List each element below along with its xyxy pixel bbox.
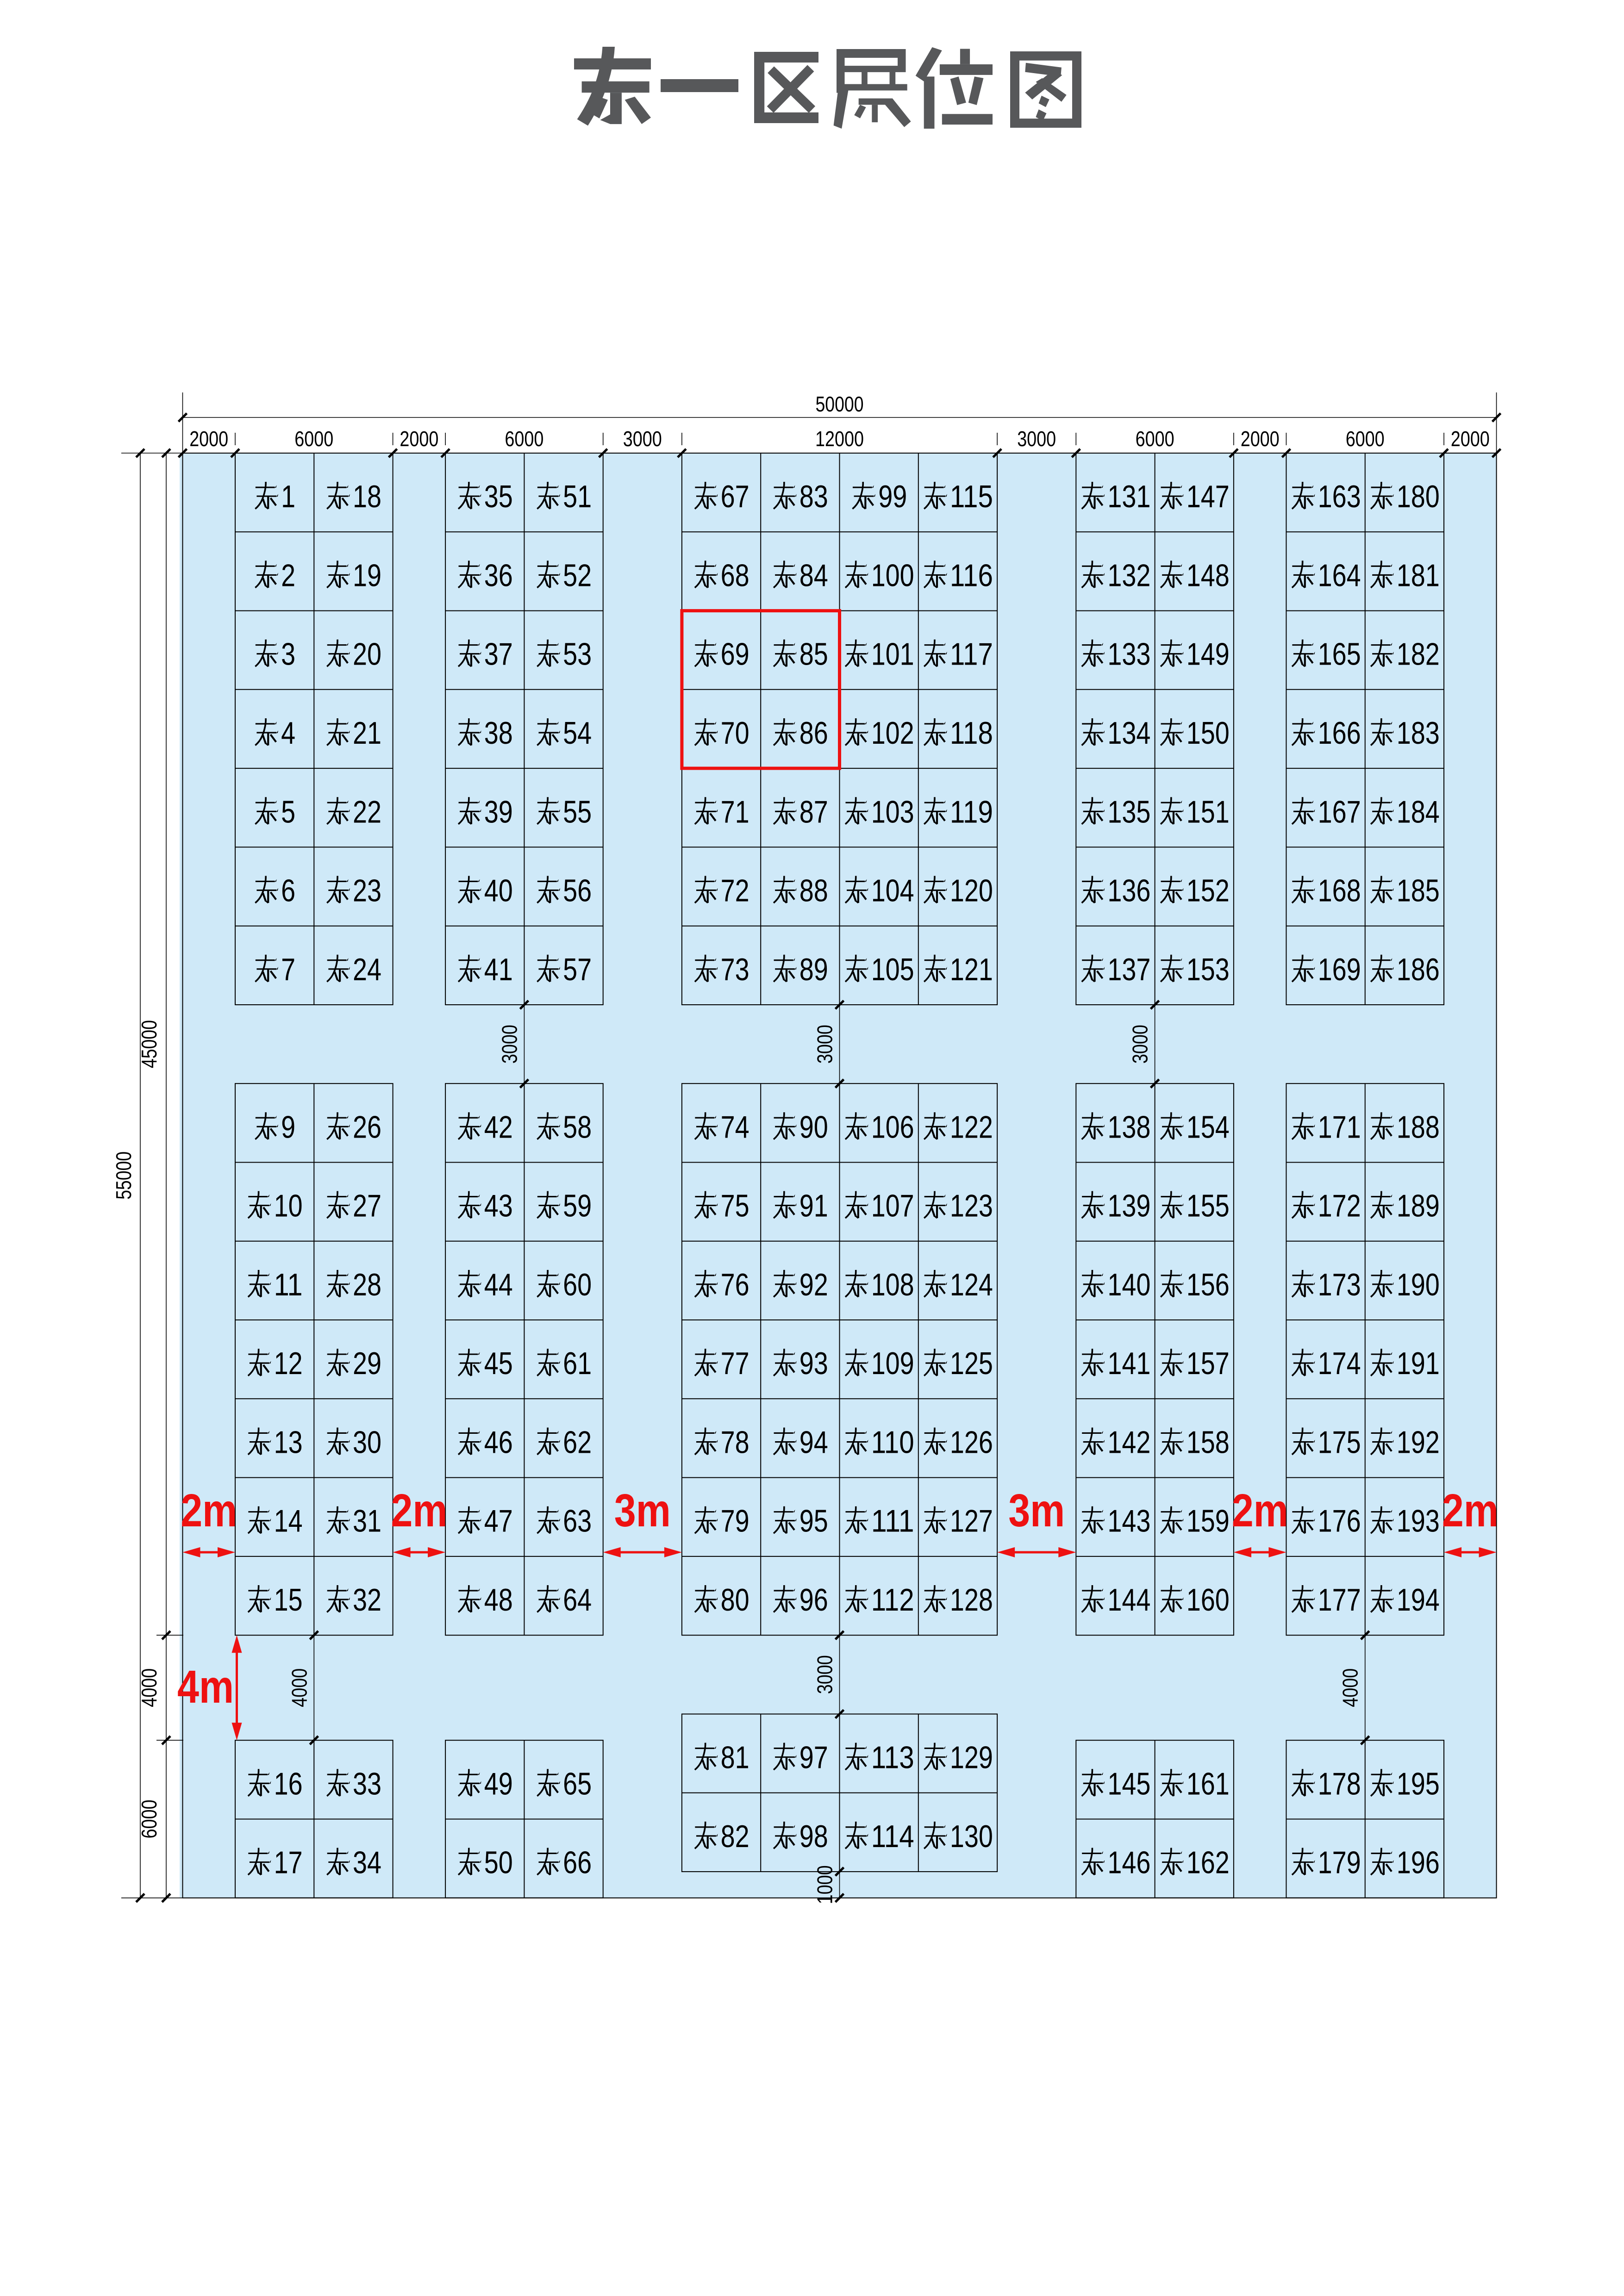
svg-text:94: 94 xyxy=(800,1425,828,1460)
svg-text:60: 60 xyxy=(563,1267,592,1302)
svg-text:65: 65 xyxy=(563,1766,592,1801)
svg-text:38: 38 xyxy=(484,716,513,751)
svg-text:57: 57 xyxy=(563,952,592,987)
svg-text:87: 87 xyxy=(800,794,828,829)
svg-text:79: 79 xyxy=(721,1504,750,1539)
svg-text:159: 159 xyxy=(1187,1504,1230,1539)
svg-text:3000: 3000 xyxy=(813,1025,837,1064)
svg-text:178: 178 xyxy=(1318,1766,1361,1801)
svg-text:180: 180 xyxy=(1397,479,1440,514)
svg-text:2: 2 xyxy=(281,558,295,593)
svg-text:107: 107 xyxy=(871,1188,914,1224)
svg-text:111: 111 xyxy=(871,1504,914,1539)
svg-text:56: 56 xyxy=(563,873,592,908)
svg-text:194: 194 xyxy=(1397,1582,1440,1618)
svg-text:92: 92 xyxy=(800,1267,828,1302)
svg-text:3m: 3m xyxy=(1008,1485,1065,1537)
svg-text:20: 20 xyxy=(353,637,381,672)
svg-text:148: 148 xyxy=(1187,558,1230,593)
svg-text:193: 193 xyxy=(1397,1504,1440,1539)
svg-text:154: 154 xyxy=(1187,1109,1230,1145)
svg-text:4: 4 xyxy=(281,716,295,751)
svg-text:151: 151 xyxy=(1187,794,1230,829)
svg-text:4000: 4000 xyxy=(1338,1668,1362,1707)
svg-text:73: 73 xyxy=(721,952,750,987)
svg-text:140: 140 xyxy=(1107,1267,1150,1302)
svg-text:13: 13 xyxy=(274,1425,303,1460)
svg-text:101: 101 xyxy=(871,637,914,672)
svg-text:69: 69 xyxy=(721,637,750,672)
svg-text:2m: 2m xyxy=(391,1485,447,1537)
svg-text:161: 161 xyxy=(1187,1766,1230,1801)
svg-text:83: 83 xyxy=(800,479,828,514)
svg-text:16: 16 xyxy=(274,1766,303,1801)
svg-text:45: 45 xyxy=(484,1346,513,1381)
svg-text:77: 77 xyxy=(721,1346,750,1381)
svg-text:66: 66 xyxy=(563,1845,592,1880)
svg-text:14: 14 xyxy=(274,1504,303,1539)
svg-text:162: 162 xyxy=(1187,1845,1230,1880)
svg-text:103: 103 xyxy=(871,794,914,829)
svg-text:43: 43 xyxy=(484,1188,513,1224)
svg-text:175: 175 xyxy=(1318,1425,1361,1460)
svg-text:3000: 3000 xyxy=(813,1655,837,1694)
svg-text:135: 135 xyxy=(1107,794,1150,829)
svg-text:3: 3 xyxy=(281,637,295,672)
svg-text:184: 184 xyxy=(1397,794,1440,829)
svg-text:171: 171 xyxy=(1318,1109,1361,1145)
svg-text:59: 59 xyxy=(563,1188,592,1224)
svg-text:47: 47 xyxy=(484,1504,513,1539)
svg-text:108: 108 xyxy=(871,1267,914,1302)
svg-text:1: 1 xyxy=(281,479,295,514)
svg-text:95: 95 xyxy=(800,1504,828,1539)
svg-text:10: 10 xyxy=(274,1188,303,1224)
svg-text:155: 155 xyxy=(1187,1188,1230,1224)
svg-text:6000: 6000 xyxy=(137,1800,161,1839)
svg-text:2000: 2000 xyxy=(1451,427,1490,451)
svg-text:113: 113 xyxy=(871,1740,914,1775)
svg-text:189: 189 xyxy=(1397,1188,1440,1224)
svg-text:145: 145 xyxy=(1107,1766,1150,1801)
svg-text:126: 126 xyxy=(950,1425,993,1460)
svg-text:2m: 2m xyxy=(1232,1485,1288,1537)
svg-text:2m: 2m xyxy=(181,1485,237,1537)
svg-text:102: 102 xyxy=(871,716,914,751)
svg-text:51: 51 xyxy=(563,479,592,514)
svg-text:42: 42 xyxy=(484,1109,513,1145)
svg-text:169: 169 xyxy=(1318,952,1361,987)
svg-text:130: 130 xyxy=(950,1819,993,1854)
svg-text:49: 49 xyxy=(484,1766,513,1801)
svg-text:168: 168 xyxy=(1318,873,1361,908)
svg-text:6000: 6000 xyxy=(1346,427,1385,451)
svg-text:4000: 4000 xyxy=(137,1668,161,1707)
svg-text:45000: 45000 xyxy=(137,1020,161,1068)
svg-text:86: 86 xyxy=(800,716,828,751)
svg-text:91: 91 xyxy=(800,1188,828,1224)
svg-text:30: 30 xyxy=(353,1425,381,1460)
svg-text:106: 106 xyxy=(871,1109,914,1145)
svg-text:191: 191 xyxy=(1397,1346,1440,1381)
svg-text:24: 24 xyxy=(353,952,381,987)
svg-text:31: 31 xyxy=(353,1504,381,1539)
svg-text:15: 15 xyxy=(274,1582,303,1618)
svg-text:124: 124 xyxy=(950,1267,993,1302)
svg-text:41: 41 xyxy=(484,952,513,987)
svg-text:185: 185 xyxy=(1397,873,1440,908)
svg-text:7: 7 xyxy=(281,952,295,987)
svg-text:70: 70 xyxy=(721,716,750,751)
svg-text:23: 23 xyxy=(353,873,381,908)
svg-text:3000: 3000 xyxy=(497,1025,521,1064)
svg-text:63: 63 xyxy=(563,1504,592,1539)
svg-text:62: 62 xyxy=(563,1425,592,1460)
svg-text:109: 109 xyxy=(871,1346,914,1381)
svg-text:12: 12 xyxy=(274,1346,303,1381)
svg-text:89: 89 xyxy=(800,952,828,987)
svg-text:58: 58 xyxy=(563,1109,592,1145)
svg-text:144: 144 xyxy=(1107,1582,1150,1618)
svg-text:26: 26 xyxy=(353,1109,381,1145)
svg-text:19: 19 xyxy=(353,558,381,593)
svg-text:158: 158 xyxy=(1187,1425,1230,1460)
svg-text:80: 80 xyxy=(721,1582,750,1618)
svg-text:44: 44 xyxy=(484,1267,513,1302)
svg-text:141: 141 xyxy=(1107,1346,1150,1381)
svg-text:127: 127 xyxy=(950,1504,993,1539)
svg-text:160: 160 xyxy=(1187,1582,1230,1618)
svg-text:153: 153 xyxy=(1187,952,1230,987)
svg-text:50: 50 xyxy=(484,1845,513,1880)
svg-text:33: 33 xyxy=(353,1766,381,1801)
svg-text:64: 64 xyxy=(563,1582,592,1618)
svg-text:3000: 3000 xyxy=(1128,1025,1152,1064)
svg-text:163: 163 xyxy=(1318,479,1361,514)
svg-text:32: 32 xyxy=(353,1582,381,1618)
svg-text:96: 96 xyxy=(800,1582,828,1618)
svg-text:3000: 3000 xyxy=(623,427,662,451)
svg-text:6000: 6000 xyxy=(1136,427,1174,451)
svg-text:136: 136 xyxy=(1107,873,1150,908)
svg-text:3m: 3m xyxy=(614,1485,671,1537)
svg-text:123: 123 xyxy=(950,1188,993,1224)
svg-text:138: 138 xyxy=(1107,1109,1150,1145)
svg-text:149: 149 xyxy=(1187,637,1230,672)
svg-text:4m: 4m xyxy=(177,1661,234,1713)
svg-text:98: 98 xyxy=(800,1819,828,1854)
svg-text:131: 131 xyxy=(1107,479,1150,514)
svg-text:143: 143 xyxy=(1107,1504,1150,1539)
svg-text:195: 195 xyxy=(1397,1766,1440,1801)
svg-text:29: 29 xyxy=(353,1346,381,1381)
svg-text:137: 137 xyxy=(1107,952,1150,987)
svg-text:82: 82 xyxy=(721,1819,750,1854)
svg-text:174: 174 xyxy=(1318,1346,1361,1381)
svg-text:55000: 55000 xyxy=(112,1151,136,1200)
svg-text:176: 176 xyxy=(1318,1504,1361,1539)
svg-text:133: 133 xyxy=(1107,637,1150,672)
svg-text:139: 139 xyxy=(1107,1188,1150,1224)
svg-text:115: 115 xyxy=(950,479,993,514)
svg-text:18: 18 xyxy=(353,479,381,514)
svg-text:9: 9 xyxy=(281,1109,295,1145)
svg-text:105: 105 xyxy=(871,952,914,987)
svg-text:67: 67 xyxy=(721,479,750,514)
svg-text:177: 177 xyxy=(1318,1582,1361,1618)
svg-text:12000: 12000 xyxy=(815,427,864,451)
svg-text:179: 179 xyxy=(1318,1845,1361,1880)
svg-text:166: 166 xyxy=(1318,716,1361,751)
svg-text:121: 121 xyxy=(950,952,993,987)
svg-text:104: 104 xyxy=(871,873,914,908)
svg-text:125: 125 xyxy=(950,1346,993,1381)
svg-text:40: 40 xyxy=(484,873,513,908)
svg-text:188: 188 xyxy=(1397,1109,1440,1145)
svg-text:156: 156 xyxy=(1187,1267,1230,1302)
svg-text:2000: 2000 xyxy=(189,427,228,451)
svg-text:78: 78 xyxy=(721,1425,750,1460)
svg-text:134: 134 xyxy=(1107,716,1150,751)
svg-text:118: 118 xyxy=(950,716,993,751)
svg-text:120: 120 xyxy=(950,873,993,908)
svg-text:68: 68 xyxy=(721,558,750,593)
svg-text:122: 122 xyxy=(950,1109,993,1145)
svg-text:183: 183 xyxy=(1397,716,1440,751)
svg-text:37: 37 xyxy=(484,637,513,672)
svg-text:36: 36 xyxy=(484,558,513,593)
svg-text:172: 172 xyxy=(1318,1188,1361,1224)
svg-text:72: 72 xyxy=(721,873,750,908)
svg-text:165: 165 xyxy=(1318,637,1361,672)
svg-text:22: 22 xyxy=(353,794,381,829)
svg-text:85: 85 xyxy=(800,637,828,672)
svg-text:112: 112 xyxy=(871,1582,914,1618)
svg-text:110: 110 xyxy=(871,1425,914,1460)
svg-text:76: 76 xyxy=(721,1267,750,1302)
svg-text:182: 182 xyxy=(1397,637,1440,672)
svg-text:146: 146 xyxy=(1107,1845,1150,1880)
svg-text:52: 52 xyxy=(563,558,592,593)
svg-text:71: 71 xyxy=(721,794,750,829)
svg-text:3000: 3000 xyxy=(1017,427,1056,451)
svg-text:142: 142 xyxy=(1107,1425,1150,1460)
svg-text:173: 173 xyxy=(1318,1267,1361,1302)
svg-text:196: 196 xyxy=(1397,1845,1440,1880)
svg-text:81: 81 xyxy=(721,1740,750,1775)
svg-text:1000: 1000 xyxy=(813,1865,837,1904)
svg-text:55: 55 xyxy=(563,794,592,829)
svg-text:132: 132 xyxy=(1107,558,1150,593)
svg-text:116: 116 xyxy=(950,558,993,593)
svg-text:28: 28 xyxy=(353,1267,381,1302)
svg-text:167: 167 xyxy=(1318,794,1361,829)
svg-text:46: 46 xyxy=(484,1425,513,1460)
svg-text:6000: 6000 xyxy=(505,427,543,451)
svg-text:53: 53 xyxy=(563,637,592,672)
svg-text:34: 34 xyxy=(353,1845,381,1880)
svg-text:5: 5 xyxy=(281,794,295,829)
svg-text:48: 48 xyxy=(484,1582,513,1618)
svg-text:54: 54 xyxy=(563,716,592,751)
svg-text:192: 192 xyxy=(1397,1425,1440,1460)
svg-text:88: 88 xyxy=(800,873,828,908)
svg-text:17: 17 xyxy=(274,1845,303,1880)
svg-text:6: 6 xyxy=(281,873,295,908)
svg-text:27: 27 xyxy=(353,1188,381,1224)
svg-text:61: 61 xyxy=(563,1346,592,1381)
svg-text:114: 114 xyxy=(871,1819,914,1854)
svg-text:2000: 2000 xyxy=(1241,427,1280,451)
svg-text:128: 128 xyxy=(950,1582,993,1618)
svg-text:129: 129 xyxy=(950,1740,993,1775)
svg-text:119: 119 xyxy=(950,794,993,829)
svg-text:157: 157 xyxy=(1187,1346,1230,1381)
svg-text:152: 152 xyxy=(1187,873,1230,908)
svg-text:147: 147 xyxy=(1187,479,1230,514)
svg-text:50000: 50000 xyxy=(816,392,864,416)
svg-text:21: 21 xyxy=(353,716,381,751)
svg-text:117: 117 xyxy=(950,637,993,672)
svg-text:4000: 4000 xyxy=(287,1668,311,1707)
svg-text:190: 190 xyxy=(1397,1267,1440,1302)
svg-text:74: 74 xyxy=(721,1109,750,1145)
svg-text:84: 84 xyxy=(800,558,828,593)
svg-text:99: 99 xyxy=(878,479,907,514)
svg-text:2000: 2000 xyxy=(400,427,438,451)
svg-text:39: 39 xyxy=(484,794,513,829)
svg-text:6000: 6000 xyxy=(294,427,333,451)
svg-text:186: 186 xyxy=(1397,952,1440,987)
svg-text:2m: 2m xyxy=(1442,1485,1499,1537)
svg-text:11: 11 xyxy=(274,1267,303,1302)
svg-text:181: 181 xyxy=(1397,558,1440,593)
svg-text:100: 100 xyxy=(871,558,914,593)
svg-text:97: 97 xyxy=(800,1740,828,1775)
svg-text:164: 164 xyxy=(1318,558,1361,593)
svg-text:35: 35 xyxy=(484,479,513,514)
svg-text:75: 75 xyxy=(721,1188,750,1224)
svg-text:90: 90 xyxy=(800,1109,828,1145)
svg-text:150: 150 xyxy=(1187,716,1230,751)
svg-text:93: 93 xyxy=(800,1346,828,1381)
